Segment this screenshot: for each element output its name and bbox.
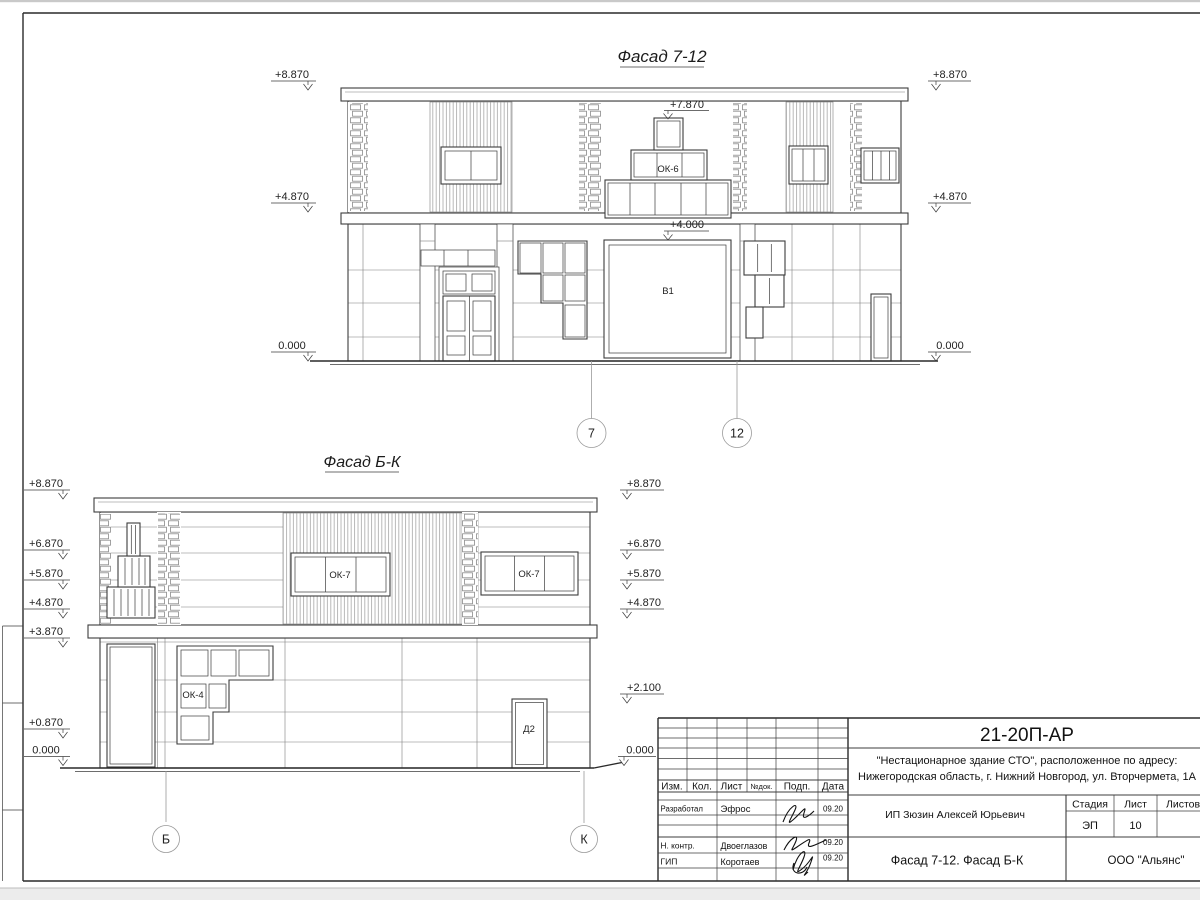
svg-text:+4.870: +4.870	[275, 191, 309, 203]
label-ok7-right: ОК-7	[518, 569, 539, 580]
slat-panel-bk: ОК-7	[283, 513, 462, 624]
col-podp: Подп.	[784, 782, 811, 793]
elevation-mark: 0.000	[928, 340, 971, 361]
quoins-column-bk	[157, 512, 181, 625]
elevation-mark: +8.870	[271, 69, 316, 90]
signature-3	[793, 852, 813, 875]
label-ok6: ОК-6	[657, 164, 678, 175]
col-data: Дата	[822, 782, 845, 793]
role: Н. контр.	[661, 841, 695, 851]
facade-b-k-title: Фасад Б-К	[324, 454, 403, 471]
quoins-column-3	[733, 102, 747, 212]
svg-text:0.000: 0.000	[32, 745, 60, 757]
parapet-bk	[94, 498, 597, 512]
svg-text:0.000: 0.000	[626, 745, 654, 757]
drawing-sheet: Фасад 7-12	[0, 0, 1200, 900]
elevation-mark: +8.870	[24, 478, 70, 499]
svg-text:0.000: 0.000	[936, 340, 964, 352]
elevation-marks-top-left: +8.870 +4.870 0.000	[271, 69, 316, 361]
elevation-marks-bottom-right: +8.870 +6.870 +5.870 +4.870 +2.100 0.000	[618, 478, 664, 766]
stage-label: Стадия	[1072, 799, 1108, 811]
quoins-left	[348, 102, 368, 212]
sheet-label: Лист	[1124, 799, 1147, 811]
svg-text:+2.100: +2.100	[627, 682, 661, 694]
axis-marker-b: Б	[153, 771, 180, 853]
svg-text:+5.870: +5.870	[29, 568, 63, 580]
elevation-mark: 0.000	[24, 745, 70, 766]
svg-text:+5.870: +5.870	[627, 568, 661, 580]
floor-band-bk	[88, 625, 597, 638]
elevation-mark-gate-top: +4.000	[664, 219, 710, 240]
label-b1: В1	[662, 286, 674, 297]
svg-text:+4.870: +4.870	[933, 191, 967, 203]
sheet-value: 10	[1129, 820, 1141, 832]
svg-text:+4.000: +4.000	[670, 219, 704, 231]
date: 09.20	[823, 838, 844, 847]
client: ИП Зюзин Алексей Юрьевич	[885, 809, 1025, 821]
entrance-door	[439, 267, 499, 361]
role: Разработал	[661, 805, 704, 814]
elevation-mark: +4.870	[620, 597, 664, 618]
gate-b1: В1	[604, 240, 731, 358]
svg-text:+4.870: +4.870	[29, 597, 63, 609]
svg-text:+6.870: +6.870	[29, 538, 63, 550]
company: ООО "Альянс"	[1108, 855, 1185, 867]
facade-7-12: Фасад 7-12	[271, 47, 971, 448]
name: Двоеглазов	[721, 841, 768, 851]
date: 09.20	[823, 854, 844, 863]
elevation-mark: +4.870	[24, 597, 70, 618]
facade-7-12-title: Фасад 7-12	[617, 47, 707, 66]
signatory-row-3: ГИП Коротаев 09.20	[661, 852, 844, 875]
stepped-window-left	[107, 523, 155, 618]
elevation-mark: +5.870	[24, 568, 70, 589]
quoins-column-bk-2	[462, 512, 478, 625]
svg-text:+8.870: +8.870	[29, 478, 63, 490]
quoins-column-right	[850, 102, 862, 212]
elevation-mark: +6.870	[24, 538, 70, 559]
elevation-mark: +0.870	[24, 717, 70, 738]
elevation-mark: +5.870	[620, 568, 664, 589]
quoins-column-2	[577, 102, 603, 212]
title-block-header-row: Изм. Кол. Лист №док. Подп. Дата	[661, 782, 844, 793]
elevation-mark: 0.000	[271, 340, 316, 361]
elevation-marks-bottom-left: +8.870 +6.870 +5.870 +4.870 +3.870 +0.87…	[24, 478, 70, 766]
stepped-window-a	[518, 241, 587, 339]
title-block: Изм. Кол. Лист №док. Подп. Дата Разработ…	[658, 718, 1200, 881]
elevation-mark: +4.870	[271, 191, 316, 212]
label-ok7-left: ОК-7	[329, 570, 350, 581]
slat-panel-2	[786, 102, 833, 212]
svg-text:+7.870: +7.870	[670, 99, 704, 111]
elevation-marks-top-right: +8.870 +4.870 0.000	[928, 69, 971, 361]
roller-shutter	[107, 644, 155, 767]
name: Коротаев	[721, 857, 760, 867]
signatory-row-1: Разработал Эфрос 09.20	[661, 804, 844, 822]
window-ok7-right: ОК-7	[481, 552, 578, 595]
elevation-mark: 0.000	[618, 745, 656, 766]
axis-marker-7: 7	[577, 361, 606, 448]
facade-b-k: Фасад Б-К	[24, 454, 664, 853]
elevation-mark: +8.870	[928, 69, 971, 90]
svg-text:+0.870: +0.870	[29, 717, 63, 729]
axis-marker-k: К	[571, 771, 598, 853]
svg-text:+3.870: +3.870	[29, 626, 63, 638]
sheets-label: Листов	[1166, 799, 1200, 811]
col-izm: Изм.	[661, 782, 682, 793]
svg-text:7: 7	[588, 427, 595, 441]
side-door	[871, 294, 891, 361]
elevation-mark: +2.100	[620, 682, 664, 703]
role: ГИП	[661, 857, 678, 867]
elevation-mark: +8.870	[620, 478, 664, 499]
svg-text:+4.870: +4.870	[627, 597, 661, 609]
label-ok4: ОК-4	[182, 690, 203, 701]
svg-text:К: К	[580, 833, 588, 847]
project-address-line1: "Нестационарное здание СТО", расположенн…	[877, 755, 1178, 767]
page-bottom-edge	[0, 888, 1200, 900]
axis-marker-12: 12	[723, 361, 752, 448]
signatory-row-2: Н. контр. Двоеглазов 09.20	[661, 837, 844, 851]
stepped-window-ok4: ОК-4	[177, 646, 273, 744]
svg-text:12: 12	[730, 427, 744, 441]
window-upper-2	[789, 146, 828, 184]
sign-band	[421, 250, 495, 266]
stage-value: ЭП	[1082, 820, 1098, 832]
ground-line-top-facade	[310, 361, 938, 365]
svg-text:+8.870: +8.870	[627, 478, 661, 490]
svg-text:Б: Б	[162, 833, 170, 847]
elevation-mark: +6.870	[620, 538, 664, 559]
col-ndok: №док.	[751, 782, 773, 791]
date: 09.20	[823, 805, 844, 814]
name: Эфрос	[721, 804, 751, 815]
project-address-line2: Нижегородская область, г. Нижний Новгоро…	[858, 771, 1197, 783]
label-d2: Д2	[523, 724, 535, 735]
col-list: Лист	[721, 782, 743, 793]
slat-panel-1	[430, 102, 512, 212]
doc-number: 21-20П-АР	[980, 725, 1074, 746]
drawing-title: Фасад 7-12. Фасад Б-К	[891, 854, 1024, 868]
parapet	[341, 88, 908, 101]
col-kol: Кол.	[692, 782, 712, 793]
svg-text:+8.870: +8.870	[933, 69, 967, 81]
elevation-mark: +4.870	[928, 191, 971, 212]
svg-text:+6.870: +6.870	[627, 538, 661, 550]
elevation-mark: +3.870	[24, 626, 70, 647]
door-d2: Д2	[512, 699, 547, 768]
svg-text:0.000: 0.000	[278, 340, 306, 352]
window-upper-right	[861, 148, 899, 183]
page-top-edge	[0, 0, 1200, 2]
svg-text:+8.870: +8.870	[275, 69, 309, 81]
signature-1	[783, 806, 814, 823]
signature-2	[784, 837, 826, 850]
